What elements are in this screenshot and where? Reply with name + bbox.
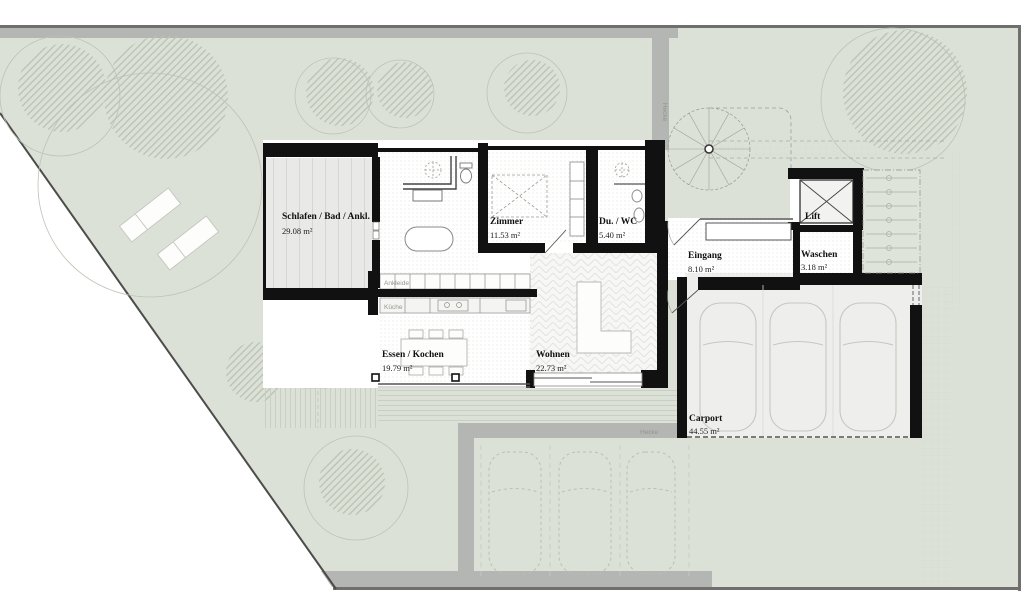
label-duwc: Du. / WC — [599, 217, 637, 227]
toilet-icon — [460, 163, 472, 183]
column — [452, 374, 459, 381]
shelf — [570, 162, 584, 236]
floor-plan-canvas: Hecke — [0, 0, 1030, 603]
tree-icon — [319, 449, 385, 515]
tree-icon — [306, 58, 374, 126]
site-border-bottom — [333, 587, 1020, 590]
area-schlafen: 29.08 m² — [282, 226, 313, 236]
door-symbol — [373, 222, 379, 230]
balcony-edge-band — [709, 141, 945, 158]
hedge-strip-side — [458, 423, 474, 578]
entry-closet — [706, 223, 791, 240]
gravel-band — [920, 285, 952, 587]
area-wohnen: 22.73 m² — [536, 363, 567, 373]
tree-icon — [18, 44, 106, 132]
floor-plan-svg: Hecke — [0, 0, 1030, 603]
site-border-top — [0, 25, 1020, 28]
area-essen: 19.79 m² — [382, 363, 413, 373]
label-ankleide: Ankleide — [384, 280, 409, 287]
area-duwc: 5.40 m² — [599, 230, 626, 240]
kueche-band — [380, 298, 530, 313]
area-eingang: 8.10 m² — [688, 264, 715, 274]
sliding-door — [534, 373, 642, 386]
tree-icon — [843, 30, 967, 154]
area-carport: 44.55 m² — [689, 426, 720, 436]
path-strip-bottom — [321, 571, 712, 587]
sink-icon — [632, 190, 642, 202]
label-wohnen: Wohnen — [536, 350, 571, 360]
room-floor-schlafen — [266, 158, 372, 288]
path-strip-top — [0, 28, 678, 38]
planting-bed — [863, 170, 920, 273]
area-waschen: 3.18 m² — [801, 262, 828, 272]
hedge-strip-vertical — [652, 38, 669, 150]
vanity — [413, 190, 442, 201]
door-symbol — [373, 231, 379, 239]
area-zimmer: 11.53 m² — [490, 230, 521, 240]
gravel-band — [948, 150, 963, 310]
label-schlafen: Schlafen / Bad / Ankl. — [282, 212, 370, 222]
column — [372, 374, 379, 381]
tree-icon — [377, 62, 433, 118]
site-border-right — [1018, 25, 1021, 591]
label-lift: Lift — [805, 212, 821, 222]
bathtub-icon — [405, 227, 453, 251]
tree-icon — [104, 35, 228, 159]
label-carport: Carport — [689, 414, 723, 424]
label-zimmer: Zimmer — [490, 217, 524, 227]
tree-icon — [504, 60, 560, 116]
label-eingang: Eingang — [688, 251, 722, 261]
label-kueche: Küche — [384, 304, 403, 311]
stair-center-post — [705, 145, 713, 153]
terrace-south — [378, 388, 677, 424]
hedge-label-horizontal: Hecke — [640, 429, 659, 436]
label-waschen: Waschen — [801, 250, 838, 260]
label-essen: Essen / Kochen — [382, 350, 444, 360]
hedge-label-vertical: Hecke — [661, 103, 668, 122]
